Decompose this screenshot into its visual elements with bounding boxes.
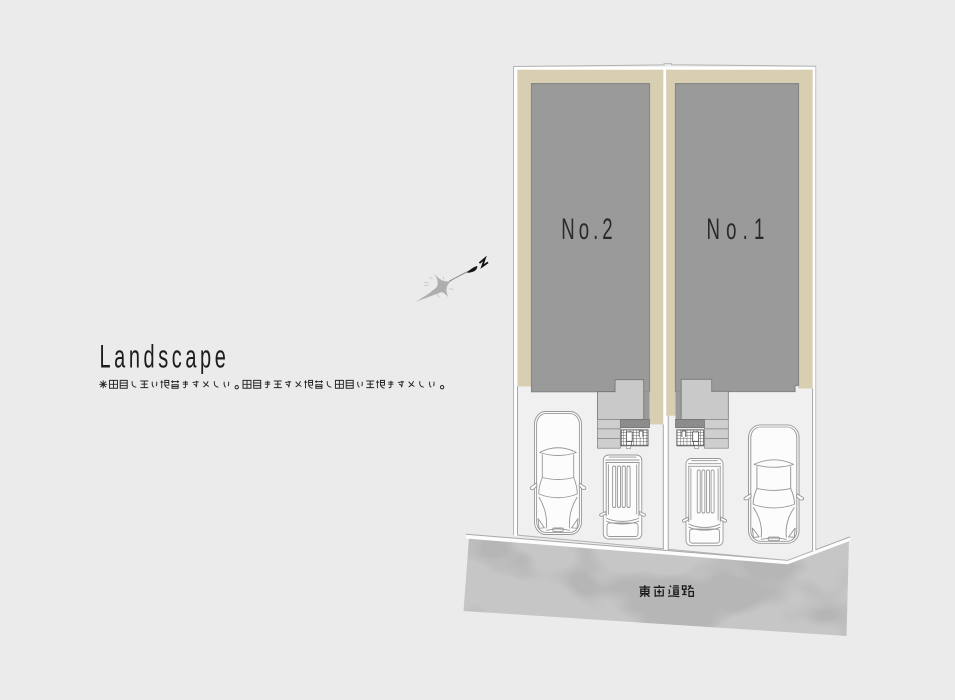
- svg-text:Landscape: Landscape: [99, 338, 229, 374]
- svg-text:No.2: No.2: [561, 212, 616, 246]
- svg-text:No.1: No.1: [706, 212, 770, 246]
